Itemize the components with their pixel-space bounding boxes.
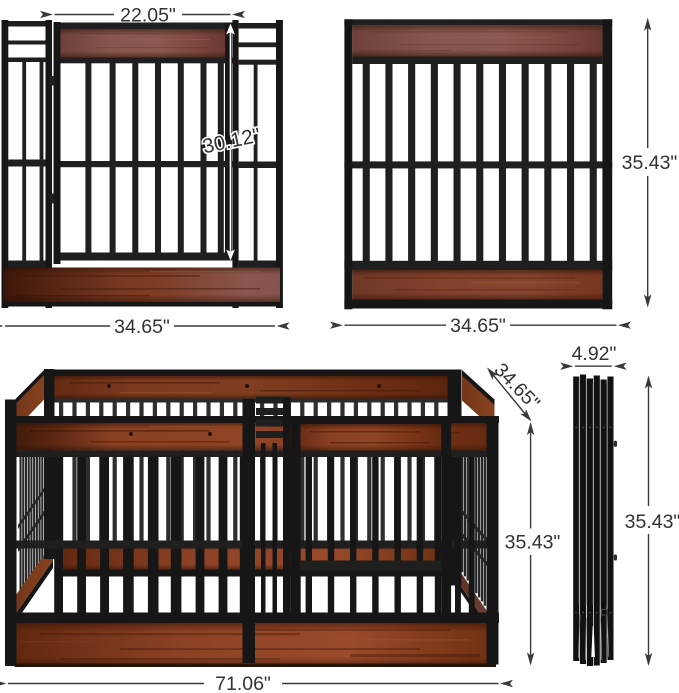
svg-text:71.06": 71.06" <box>215 673 271 693</box>
svg-text:35.43": 35.43" <box>505 532 561 554</box>
svg-text:34.65": 34.65" <box>114 316 170 338</box>
svg-text:4.92": 4.92" <box>572 343 617 365</box>
svg-text:35.43": 35.43" <box>622 152 678 174</box>
svg-text:35.43": 35.43" <box>625 511 679 533</box>
svg-text:34.65": 34.65" <box>450 315 506 337</box>
svg-text:22.05": 22.05" <box>120 5 176 27</box>
